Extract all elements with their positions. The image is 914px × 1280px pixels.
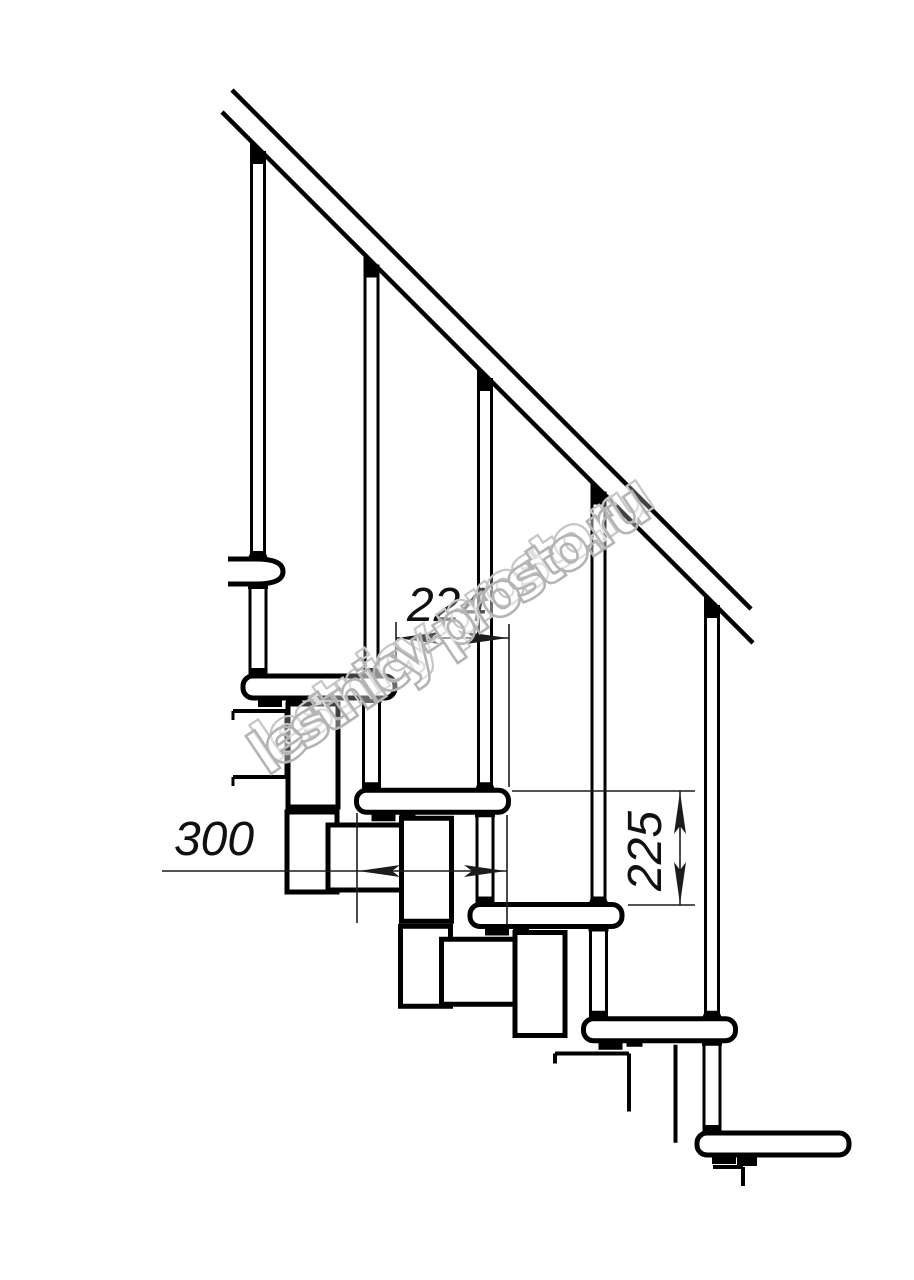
dimension-label-300: 300	[174, 813, 254, 866]
handrail-lower-line	[222, 112, 753, 643]
module-tall-box	[515, 933, 565, 1036]
upper-tread-fragment	[228, 559, 283, 584]
tread-bracket-tab	[599, 1039, 623, 1050]
dimension-label-225: 225	[619, 811, 672, 892]
tread-bracket-tab	[712, 1153, 736, 1164]
tread-bracket-tab	[372, 810, 396, 821]
tread-bracket-tab	[513, 925, 529, 933]
tread-bracket-tab	[286, 696, 302, 704]
tread	[357, 790, 509, 812]
tread-bracket-tab	[400, 810, 416, 818]
tread	[584, 1019, 736, 1041]
tread	[243, 676, 395, 698]
module-wide-box	[328, 825, 402, 890]
tread-bracket-tab	[258, 696, 282, 707]
dimension-label-224: 224	[406, 579, 487, 632]
module-tall-box	[288, 704, 338, 807]
module-wide-box	[442, 939, 516, 1004]
tread-bracket-tab	[627, 1039, 643, 1047]
tread-bracket-tab	[740, 1153, 756, 1161]
tread	[470, 905, 622, 927]
module-tall-box	[402, 818, 452, 921]
staircase-drawing-page: 224300225 lestnicy-prosto.ru lestnicy-pr…	[0, 0, 914, 1280]
tread-bracket-tab	[485, 925, 509, 936]
staircase-line-drawing: 224300225	[0, 0, 914, 1280]
tread	[697, 1133, 849, 1155]
